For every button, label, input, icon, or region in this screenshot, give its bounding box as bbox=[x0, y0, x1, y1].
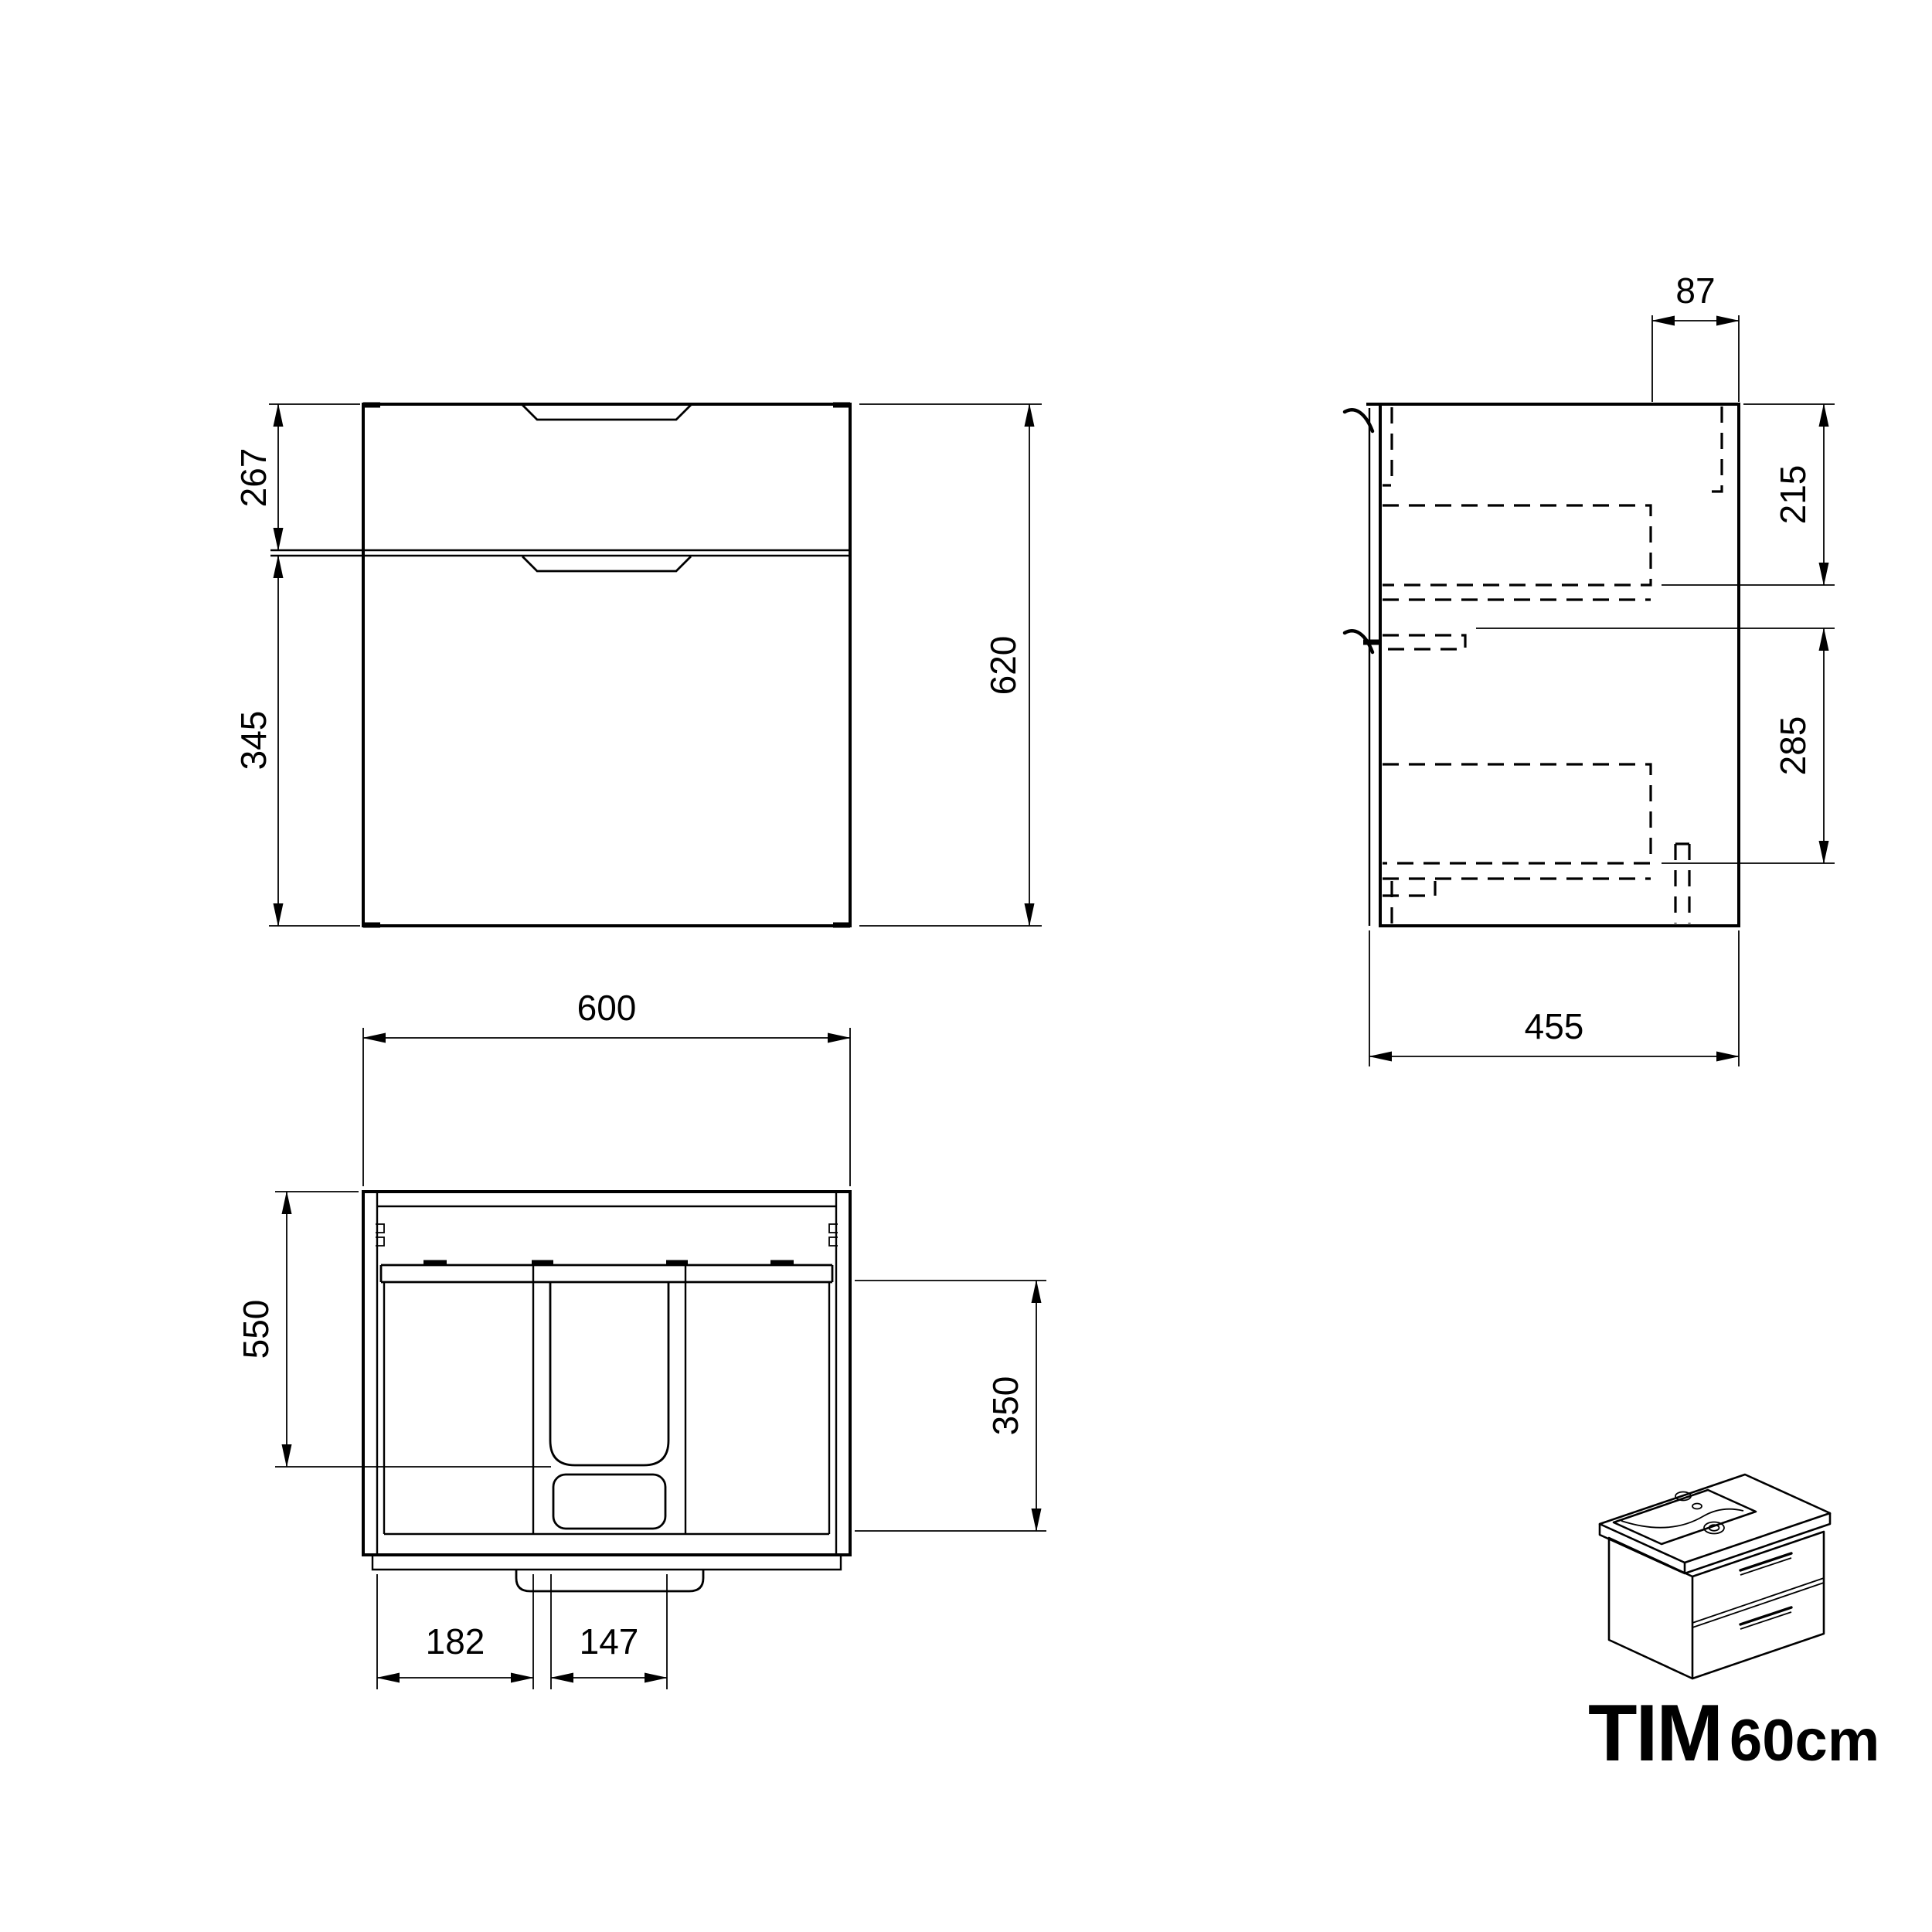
top-dim-label-147: 147 bbox=[580, 1621, 639, 1662]
front-dim-label-620: 620 bbox=[983, 636, 1023, 696]
side-dim-label-285: 285 bbox=[1773, 716, 1813, 776]
product-model-name: TIM bbox=[1588, 1689, 1722, 1778]
side-dim-label-455: 455 bbox=[1525, 1006, 1584, 1046]
top-dim-label-350: 350 bbox=[985, 1376, 1026, 1436]
product-size-label: 60cm bbox=[1730, 1708, 1879, 1774]
front-dim-label-267: 267 bbox=[233, 448, 274, 508]
page-background bbox=[0, 0, 1932, 1932]
top-dim-label-550: 550 bbox=[236, 1300, 276, 1359]
top-dim-label-182: 182 bbox=[426, 1621, 485, 1662]
technical-drawing-canvas: 267 345 620 87 215 bbox=[0, 0, 1932, 1932]
front-dim-label-345: 345 bbox=[233, 711, 274, 770]
side-dim-label-87: 87 bbox=[1675, 270, 1715, 311]
top-dim-label-600: 600 bbox=[577, 988, 637, 1028]
side-dim-label-215: 215 bbox=[1773, 465, 1813, 525]
